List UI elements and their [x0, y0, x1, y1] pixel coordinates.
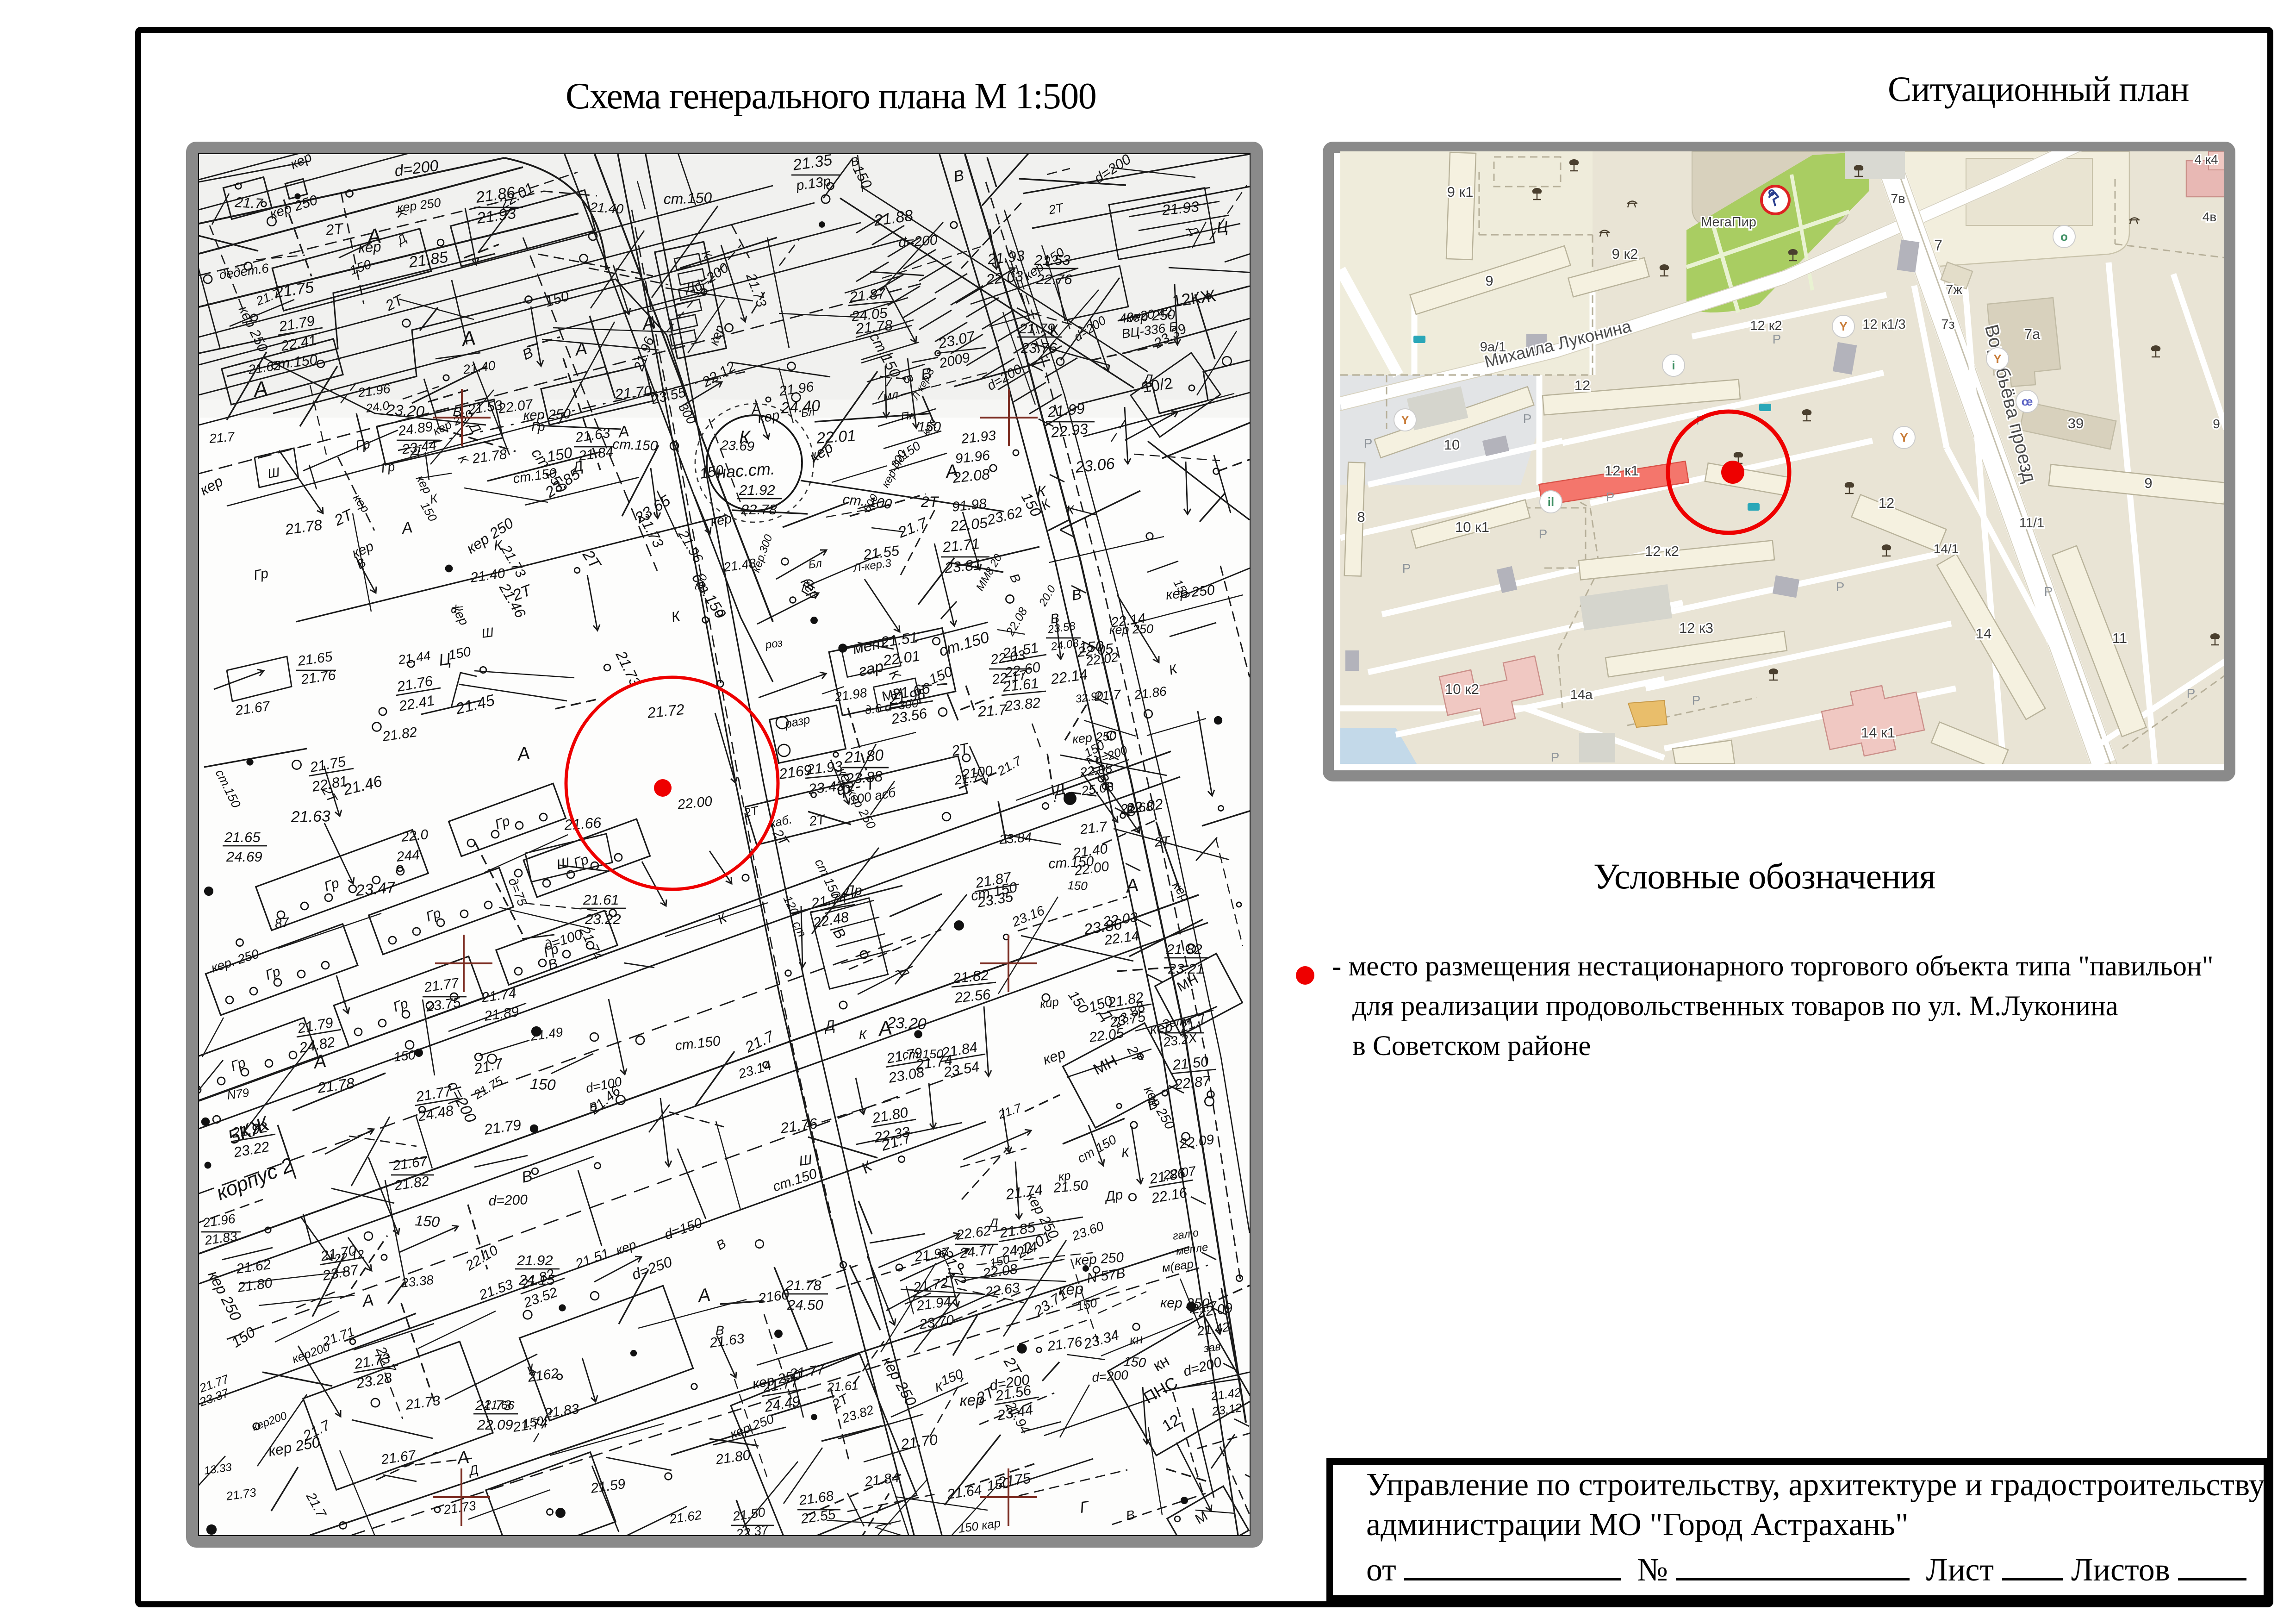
svg-text:12 к3: 12 к3 — [1679, 620, 1713, 636]
svg-text:21.79: 21.79 — [1019, 320, 1055, 337]
svg-text:8: 8 — [1357, 509, 1365, 525]
svg-text:Р: Р — [1836, 580, 1845, 594]
svg-text:21.53: 21.53 — [1034, 252, 1070, 268]
svg-text:21.66: 21.66 — [563, 814, 602, 833]
svg-text:21.78: 21.78 — [785, 1277, 821, 1293]
svg-text:Др: Др — [843, 883, 862, 898]
svg-text:22.09: 22.09 — [477, 1417, 513, 1433]
svg-text:9: 9 — [1485, 273, 1493, 289]
svg-text:Р: Р — [2044, 584, 2053, 599]
svg-text:23.76: 23.76 — [1020, 340, 1057, 356]
svg-text:21.92: 21.92 — [516, 1252, 553, 1268]
svg-text:мл: мл — [883, 387, 900, 403]
svg-text:21.7: 21.7 — [234, 194, 264, 212]
svg-text:Y: Y — [1839, 319, 1847, 333]
svg-text:Р: Р — [1551, 750, 1560, 764]
svg-text:o: o — [2060, 230, 2068, 244]
svg-text:150: 150 — [415, 1212, 441, 1230]
svg-text:21.73: 21.73 — [475, 1397, 511, 1413]
svg-text:9 к2: 9 к2 — [1612, 246, 1638, 262]
svg-text:9: 9 — [2144, 475, 2152, 491]
svg-text:14а: 14а — [1570, 687, 1593, 702]
svg-text:12 к2: 12 к2 — [1645, 543, 1679, 559]
svg-text:роз: роз — [764, 637, 784, 651]
svg-text:кн: кн — [1129, 1331, 1144, 1348]
svg-text:23.20: 23.20 — [886, 1014, 927, 1033]
svg-text:ст.150: ст.150 — [663, 189, 712, 207]
svg-text:9: 9 — [2213, 417, 2220, 431]
svg-text:d=200: d=200 — [898, 232, 938, 250]
svg-text:Гр: Гр — [531, 419, 545, 434]
svg-text:7в: 7в — [1891, 192, 1905, 206]
svg-text:Д: Д — [1142, 372, 1153, 387]
svg-text:12: 12 — [1574, 377, 1590, 394]
svg-text:4 к4: 4 к4 — [2194, 152, 2218, 167]
svg-text:14: 14 — [1976, 625, 1991, 642]
svg-text:Гр: Гр — [252, 566, 269, 583]
svg-text:21.7: 21.7 — [977, 701, 1008, 720]
svg-text:7ж: 7ж — [1946, 282, 1962, 297]
svg-text:кер: кер — [1058, 1280, 1084, 1299]
svg-text:21.63: 21.63 — [290, 807, 330, 826]
svg-text:Р: Р — [1606, 490, 1615, 504]
svg-text:кр: кр — [1058, 1168, 1072, 1184]
svg-text:Y: Y — [1900, 431, 1908, 444]
svg-text:Р: Р — [1692, 693, 1701, 707]
svg-text:кир: кир — [1039, 994, 1060, 1011]
svg-text:150: 150 — [1067, 878, 1088, 893]
svg-text:Р: Р — [1523, 412, 1532, 426]
svg-text:Y: Y — [1401, 413, 1409, 427]
svg-text:12: 12 — [1879, 495, 1894, 511]
svg-text:23.47: 23.47 — [355, 879, 396, 899]
svg-text:МегаПир: МегаПир — [1701, 215, 1756, 230]
svg-text:23.21: 23.21 — [1168, 961, 1204, 977]
svg-text:11/1: 11/1 — [2019, 516, 2044, 531]
svg-text:21.7: 21.7 — [208, 430, 236, 446]
svg-text:d=: d= — [450, 602, 464, 616]
svg-text:14 к1: 14 к1 — [1861, 725, 1895, 741]
svg-text:23.88: 23.88 — [845, 768, 884, 787]
svg-text:7а: 7а — [2024, 326, 2041, 342]
svg-text:11: 11 — [2112, 630, 2127, 646]
svg-text:23.20: 23.20 — [386, 401, 425, 420]
svg-text:7: 7 — [1934, 237, 1942, 254]
svg-text:Бл: Бл — [800, 406, 815, 420]
svg-text:23.84: 23.84 — [998, 830, 1032, 847]
svg-text:il: il — [1548, 495, 1554, 509]
svg-text:i: i — [1672, 358, 1675, 372]
svg-text:39: 39 — [2068, 415, 2084, 431]
svg-text:22.76: 22.76 — [1036, 271, 1072, 287]
svg-text:Р: Р — [1539, 527, 1548, 541]
svg-text:244: 244 — [395, 847, 420, 865]
svg-text:21.80: 21.80 — [843, 746, 884, 767]
svg-text:К: К — [859, 1027, 867, 1042]
svg-text:10: 10 — [1444, 437, 1460, 453]
svg-text:12 к2: 12 к2 — [1750, 319, 1782, 333]
svg-text:2Т: 2Т — [921, 493, 940, 510]
svg-text:Р: Р — [2187, 686, 2196, 700]
svg-text:2Т: 2Т — [324, 220, 345, 238]
svg-text:2Т: 2Т — [1153, 833, 1171, 849]
svg-text:Ш: Ш — [798, 1152, 813, 1169]
svg-text:87: 87 — [274, 915, 291, 931]
svg-text:12 к1: 12 к1 — [1605, 462, 1639, 479]
svg-text:24.50: 24.50 — [787, 1297, 823, 1313]
svg-text:Др: Др — [1103, 1187, 1124, 1205]
svg-text:12 к1/3: 12 к1/3 — [1862, 317, 1905, 332]
svg-text:œ: œ — [2022, 394, 2033, 408]
svg-text:21.82: 21.82 — [1166, 941, 1202, 957]
svg-text:150: 150 — [393, 1048, 416, 1064]
svg-text:Бл: Бл — [808, 557, 823, 571]
svg-text:14/1: 14/1 — [1934, 542, 1959, 556]
svg-text:Р: Р — [1402, 561, 1411, 575]
svg-text:10 к2: 10 к2 — [1445, 681, 1479, 697]
svg-text:Y: Y — [1993, 352, 2001, 366]
svg-text:нас.ст.: нас.ст. — [716, 459, 776, 482]
svg-text:Пл: Пл — [900, 409, 916, 423]
svg-text:9 к1: 9 к1 — [1447, 184, 1474, 200]
svg-text:150: 150 — [530, 1075, 557, 1093]
svg-text:4в: 4в — [2203, 210, 2216, 224]
svg-text:21.61: 21.61 — [583, 892, 619, 908]
svg-text:Ш: Ш — [481, 625, 495, 641]
svg-text:d=200: d=200 — [1091, 1368, 1129, 1385]
svg-text:22.0: 22.0 — [400, 827, 429, 845]
svg-text:зав: зав — [1202, 1340, 1221, 1355]
svg-text:Гр: Гр — [380, 459, 396, 475]
svg-text:10 к1: 10 к1 — [1455, 519, 1489, 535]
svg-text:21.40: 21.40 — [589, 200, 624, 217]
svg-text:кер: кер — [358, 238, 381, 256]
svg-text:23.69: 23.69 — [720, 438, 755, 454]
svg-text:2Т: 2Т — [808, 812, 827, 829]
svg-text:Р: Р — [1773, 332, 1781, 346]
svg-text:Р: Р — [1364, 436, 1373, 450]
svg-text:21.92: 21.92 — [739, 482, 775, 498]
svg-text:d=200: d=200 — [488, 1192, 528, 1209]
svg-text:21.65: 21.65 — [224, 829, 261, 845]
svg-text:22.78: 22.78 — [740, 501, 777, 518]
svg-text:24.69: 24.69 — [226, 849, 262, 865]
svg-text:7з: 7з — [1941, 317, 1954, 332]
